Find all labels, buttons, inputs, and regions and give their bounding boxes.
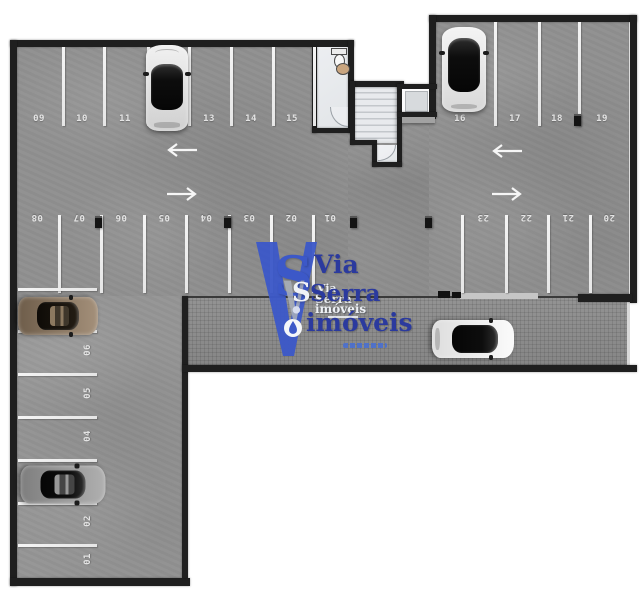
parking-line bbox=[185, 215, 188, 293]
space-label: 22 bbox=[517, 212, 535, 222]
car-glass bbox=[452, 325, 498, 353]
wall-left bbox=[10, 40, 17, 586]
car-mirror bbox=[74, 463, 78, 468]
column-post bbox=[425, 216, 432, 228]
space-label: 11 bbox=[116, 114, 134, 124]
parking-line bbox=[188, 47, 191, 126]
space-label: 09 bbox=[30, 114, 48, 124]
space-label: 06 bbox=[83, 341, 93, 359]
space-label: 02 bbox=[282, 212, 300, 222]
space-label: 04 bbox=[83, 427, 93, 445]
lane-arrow-left-upper bbox=[164, 142, 198, 162]
car-roof bbox=[54, 474, 74, 494]
column-post bbox=[95, 216, 102, 228]
car-mirror bbox=[143, 72, 148, 76]
parking-line bbox=[18, 373, 97, 376]
logo-text-via: Via bbox=[314, 252, 359, 277]
space-label: 18 bbox=[548, 114, 566, 124]
car-mirror bbox=[439, 51, 445, 55]
parking-line bbox=[505, 215, 508, 293]
floor-lower-left-strip bbox=[17, 296, 182, 578]
car-space-07 bbox=[18, 297, 98, 335]
space-label: 13 bbox=[200, 114, 218, 124]
via-serra-imoveis-watermark: S S Via Serra imóveis Via Serra imóveis bbox=[250, 236, 440, 361]
space-label: 23 bbox=[474, 212, 492, 222]
logo-text-serra: Serra bbox=[310, 282, 380, 305]
space-label: 04 bbox=[197, 212, 215, 222]
space-label: 01 bbox=[83, 550, 93, 568]
stairwell bbox=[355, 87, 397, 143]
wall-bottom-left bbox=[10, 578, 190, 586]
road-right-gate bbox=[627, 300, 630, 365]
wall-right bbox=[630, 15, 637, 303]
stair-wall-top bbox=[350, 81, 404, 87]
space-label: 21 bbox=[559, 212, 577, 222]
parking-line bbox=[589, 215, 592, 293]
space-label: 05 bbox=[83, 384, 93, 402]
space-label: 07 bbox=[70, 212, 88, 222]
car-space-16 bbox=[442, 27, 486, 112]
parking-line bbox=[18, 459, 97, 462]
space-label: 20 bbox=[600, 212, 618, 222]
parking-line bbox=[313, 47, 316, 126]
space-label: 05 bbox=[155, 212, 173, 222]
car-tail bbox=[154, 122, 179, 127]
parking-line bbox=[103, 47, 106, 126]
car-mirror bbox=[74, 500, 78, 505]
space-label: 02 bbox=[83, 512, 93, 530]
space-label: 03 bbox=[240, 212, 258, 222]
column-post bbox=[574, 114, 581, 126]
car-roof bbox=[50, 306, 69, 326]
column-post bbox=[224, 216, 231, 228]
parking-line bbox=[18, 544, 97, 547]
space-label: 14 bbox=[242, 114, 260, 124]
lane-arrow-right-lower bbox=[166, 186, 200, 206]
lane-arrow-left-upper-right-block bbox=[489, 143, 523, 163]
space-label: 08 bbox=[28, 212, 46, 222]
space-label: 16 bbox=[451, 114, 469, 124]
car-tail bbox=[451, 104, 477, 109]
elevator-ledge bbox=[402, 117, 435, 123]
column-post bbox=[350, 216, 357, 228]
parking-line bbox=[62, 47, 65, 126]
parking-line bbox=[18, 416, 97, 419]
parking-line bbox=[538, 22, 541, 126]
bathroom-wall-bottom bbox=[312, 128, 354, 133]
lane-arrow-right-lower-right-block bbox=[491, 186, 525, 206]
space-label: 01 bbox=[321, 212, 339, 222]
parking-line bbox=[494, 22, 497, 126]
logo-ghost-s: S bbox=[292, 278, 311, 308]
car-mirror bbox=[489, 318, 493, 323]
logo-text-imoveis: imóveis bbox=[306, 310, 413, 335]
parking-line bbox=[230, 47, 233, 126]
car-space-03 bbox=[20, 465, 105, 503]
wall-right-block-left bbox=[429, 15, 436, 119]
logo-tagline bbox=[343, 343, 387, 348]
parking-line bbox=[547, 215, 550, 293]
parking-line bbox=[18, 288, 97, 291]
road-curb-light bbox=[460, 293, 538, 299]
car-glass bbox=[448, 38, 481, 92]
wall-road-bottom bbox=[182, 365, 637, 372]
car-glass bbox=[151, 64, 182, 110]
sink bbox=[336, 63, 350, 75]
car-mirror bbox=[489, 355, 493, 360]
space-label: 15 bbox=[283, 114, 301, 124]
car-space-12 bbox=[146, 45, 188, 131]
space-label: 10 bbox=[73, 114, 91, 124]
space-label: 19 bbox=[593, 114, 611, 124]
stair-wall-left bbox=[350, 81, 355, 145]
car-driveway bbox=[432, 320, 514, 358]
wall-strip-right bbox=[182, 296, 188, 578]
parking-line bbox=[58, 215, 61, 293]
parking-line bbox=[461, 215, 464, 293]
parking-line bbox=[272, 47, 275, 126]
car-mirror bbox=[69, 295, 73, 300]
car-mirror bbox=[483, 51, 489, 55]
road-curb-mark-2 bbox=[452, 292, 461, 298]
landing-wall-bottom bbox=[372, 162, 402, 167]
car-mirror bbox=[185, 72, 190, 76]
parking-line bbox=[578, 22, 581, 126]
parking-floor-plan: 09 10 11 12 13 14 15 16 17 18 19 08 07 0… bbox=[0, 0, 643, 600]
wall-road-top-dark bbox=[578, 294, 632, 302]
elevator-cab bbox=[405, 91, 428, 112]
space-label: 17 bbox=[506, 114, 524, 124]
space-label: 06 bbox=[112, 212, 130, 222]
parking-line bbox=[143, 215, 146, 293]
wall-top-right bbox=[429, 15, 637, 22]
